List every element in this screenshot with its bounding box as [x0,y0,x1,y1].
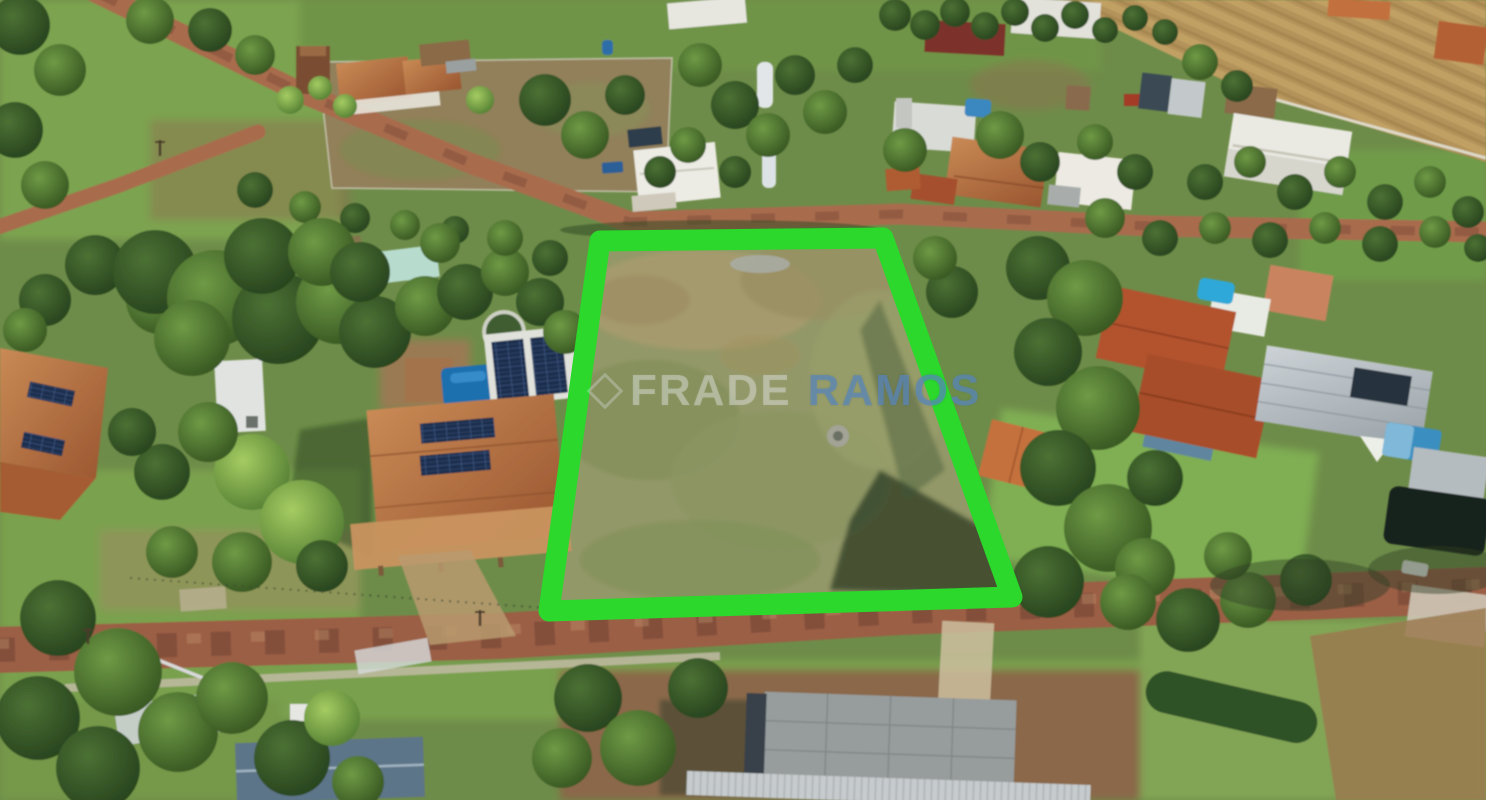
tree [519,74,571,126]
tree [304,690,360,746]
tree [235,35,275,75]
cypress-tree [1152,19,1178,45]
blue-pickup [602,161,624,173]
tree [237,172,273,208]
palm-tree [308,76,332,100]
tree [34,44,86,96]
tree [108,408,156,456]
tree [803,90,847,134]
tree [600,710,676,786]
palm-tree [333,94,357,118]
tree [1156,588,1220,652]
tree [487,220,523,256]
tree [668,658,728,718]
gray-shed [1047,184,1081,207]
tree [644,156,676,188]
red-box [1124,94,1140,106]
tree [1127,450,1183,506]
dark-wall-band [744,693,767,782]
veranda-post [498,557,504,567]
tree [420,223,460,263]
tree [390,210,420,240]
tree [1117,154,1153,190]
driveway [179,586,226,611]
tree [532,240,568,276]
palm-tree [276,86,304,114]
tree [678,43,722,87]
tree [976,111,1024,159]
tree [289,191,321,223]
tree [913,236,957,280]
tree [296,540,348,592]
cypress-tree [1061,1,1089,29]
cypress-tree [971,12,999,40]
aerial-photo-canvas [0,0,1486,800]
tree [1077,124,1113,160]
tree [670,127,706,163]
pool-tarp-light [1382,422,1415,460]
tree [605,75,645,115]
tree [837,47,873,83]
tree [1142,220,1178,256]
tree [719,156,751,188]
tree [21,161,69,209]
tree [1182,44,1218,80]
lot-green-patch [580,520,820,600]
palm-tree [466,86,494,114]
tree [1362,226,1398,262]
tile-roof-large [0,348,108,478]
cypress-tree [910,10,940,40]
tree [196,662,268,734]
brick-tower-cap [300,46,326,56]
tree [1199,212,1231,244]
brown-box [1065,85,1091,111]
tile-roof [1434,21,1486,66]
tree [188,8,232,52]
blue-water-tank [602,40,613,55]
shed-door [246,416,258,428]
well-cover-center [833,431,843,441]
photo-paint [0,0,1486,800]
tree [532,728,592,788]
bare-gray-patch [730,255,790,273]
cypress-tree [1092,17,1118,43]
tree [1187,164,1223,200]
tree [1221,70,1253,102]
tree [775,55,815,95]
tree [146,526,198,578]
tree [330,242,390,302]
bare-ground [1310,608,1486,800]
tree [1252,222,1288,258]
veranda-post [378,566,384,576]
tree [178,402,238,462]
tree [1324,156,1356,188]
tree [1085,198,1125,238]
tree-shadow [1210,559,1390,611]
dark-roof-half [1138,72,1172,111]
tree [1309,212,1341,244]
roof-tower [896,98,912,128]
tree [1020,142,1060,182]
tree [561,111,609,159]
tree [3,308,47,352]
tree [746,113,790,157]
aerial-photo: FRADE RAMOS [0,0,1486,800]
tree [154,300,230,376]
tree [1277,174,1313,210]
tree [883,128,927,172]
tree [1414,166,1446,198]
solar-array [491,339,529,400]
tree [1012,546,1084,618]
tree [212,532,272,592]
cypress-tree [879,0,911,31]
tree [1234,146,1266,178]
cypress-tree [1031,14,1059,42]
cypress-tree [1122,5,1148,31]
tree [1452,196,1484,228]
driveway [938,621,994,710]
lot-brown-patch [590,275,690,325]
water-tower [757,62,773,108]
tree [1100,574,1156,630]
small-pool [1196,277,1235,305]
tree [1419,216,1451,248]
solar-flat-roof [627,126,663,147]
gray-roof-half [1168,78,1206,118]
tree [1367,184,1403,220]
lot-brown-patch [720,335,800,375]
